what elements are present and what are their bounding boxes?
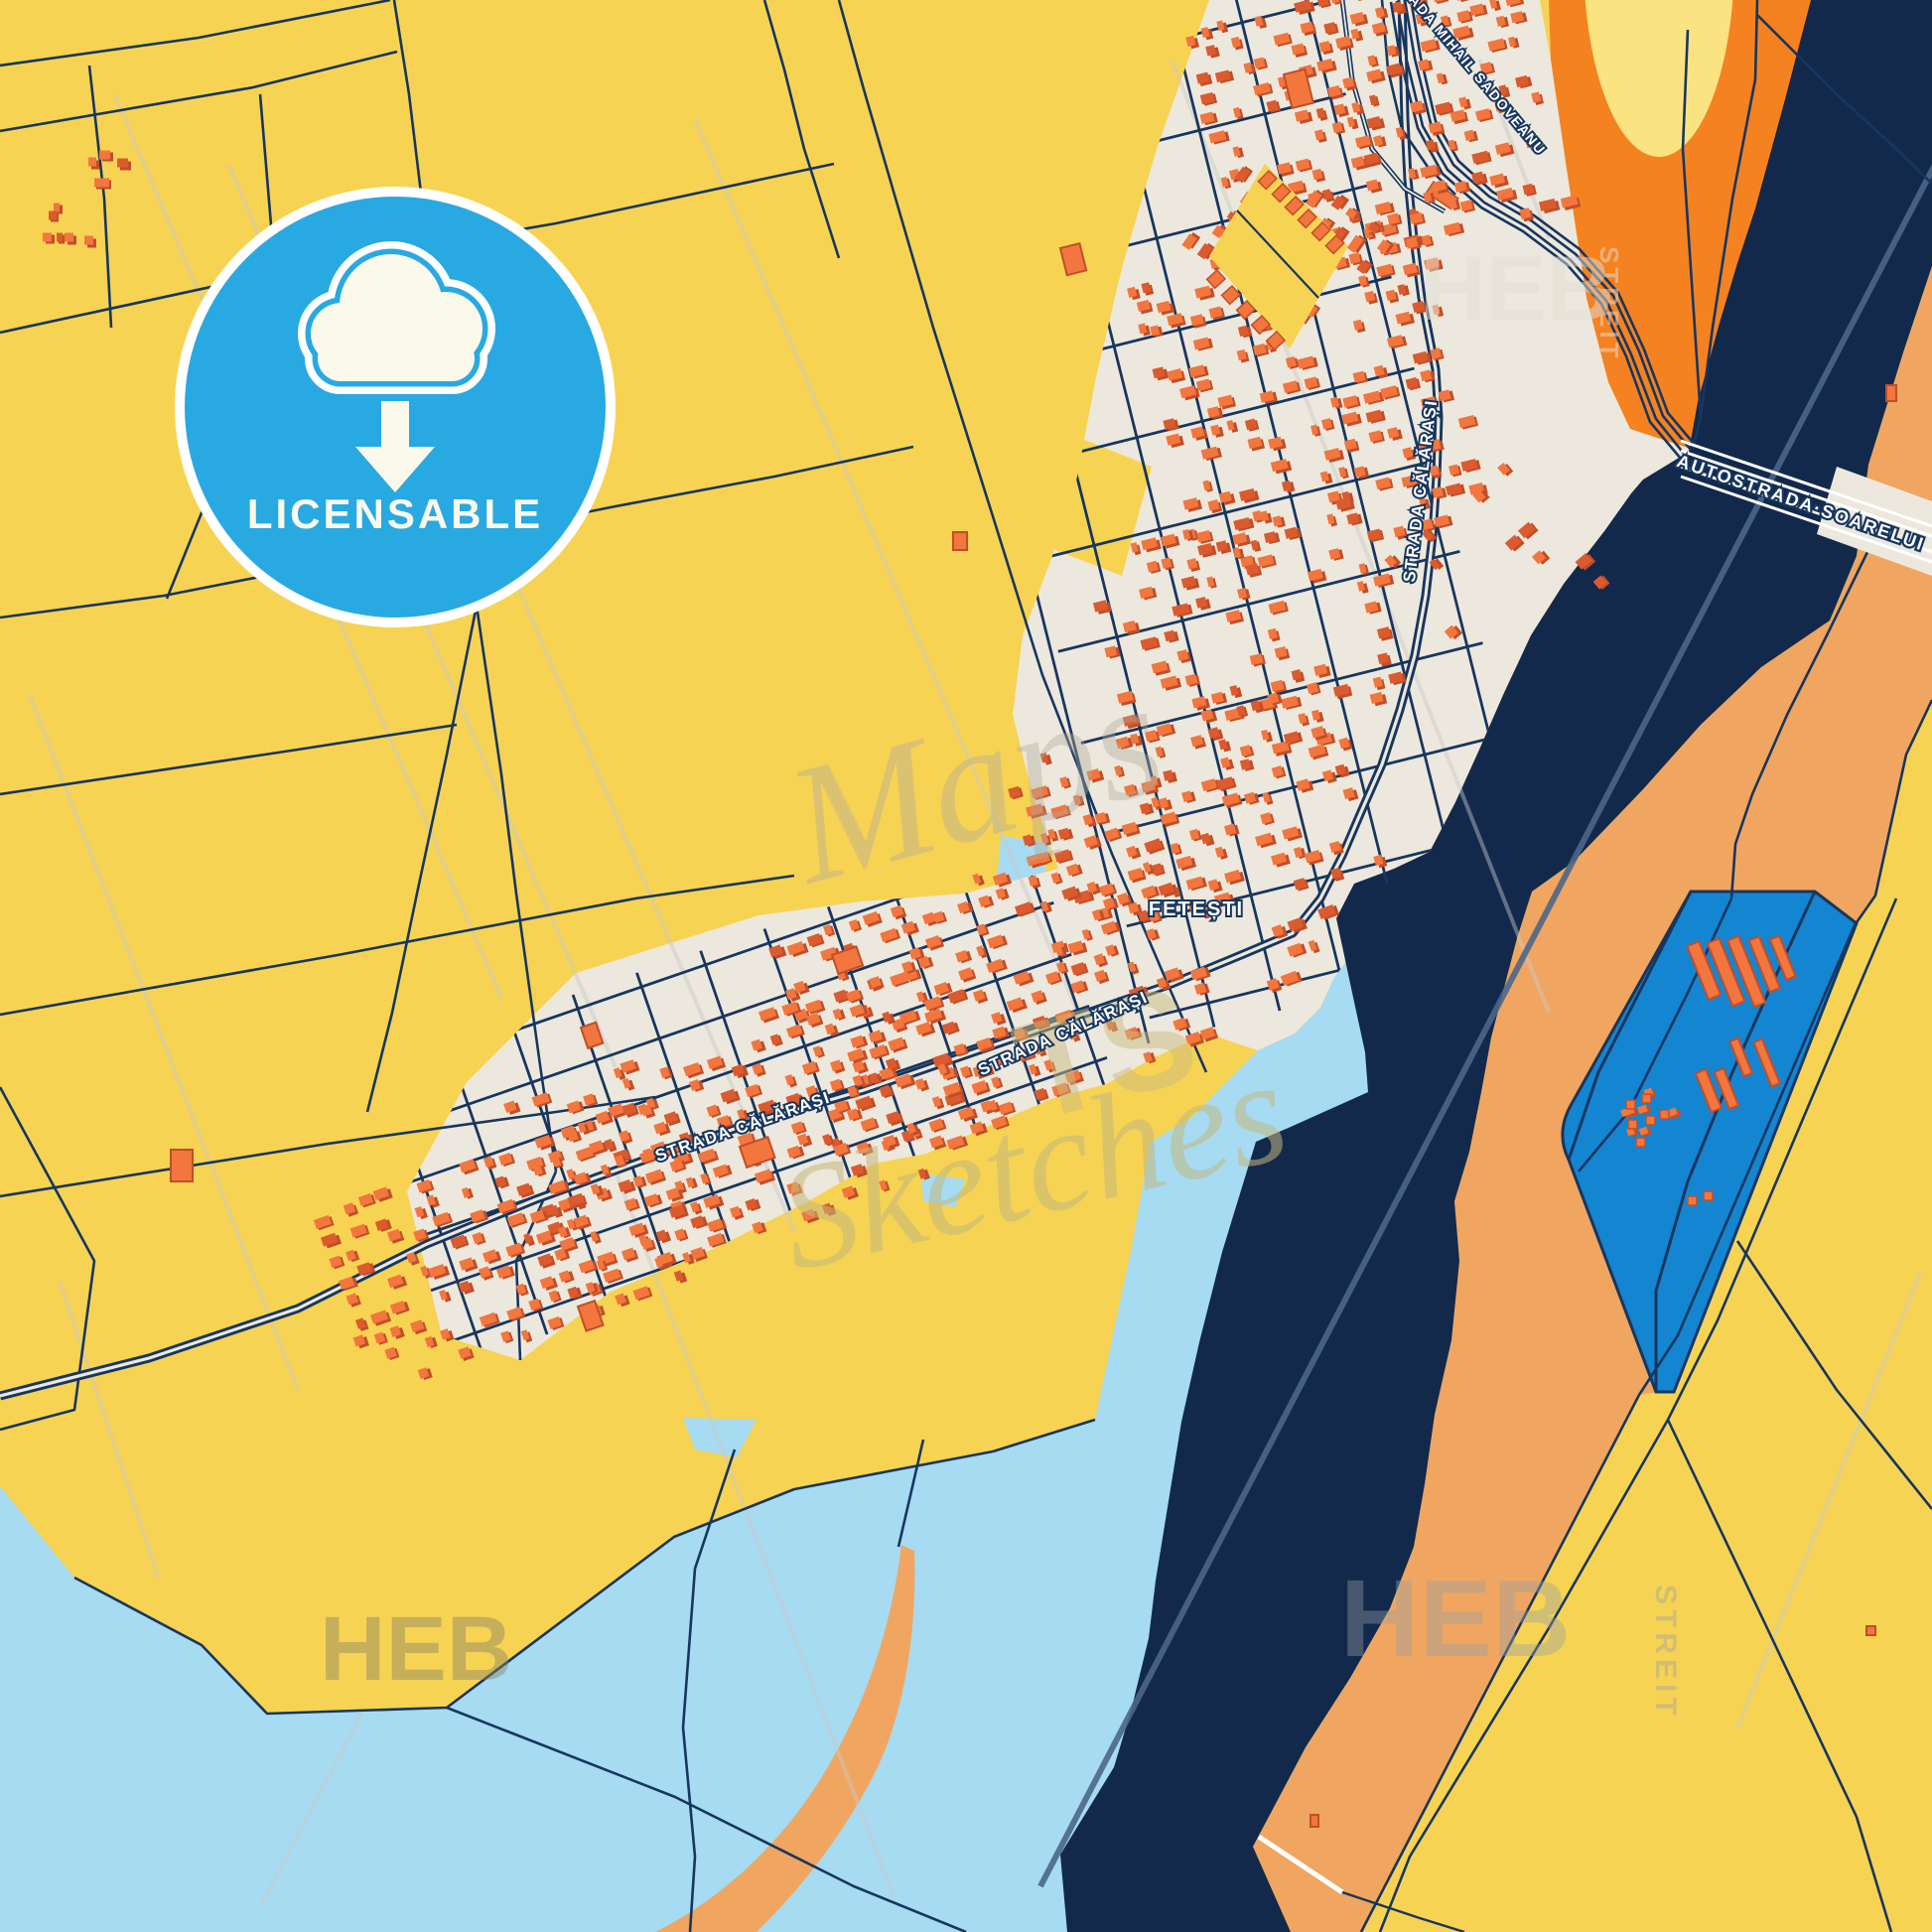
svg-text:STREIT: STREIT	[1649, 1585, 1682, 1721]
svg-text:LICENSABLE: LICENSABLE	[247, 490, 543, 537]
svg-text:STREIT: STREIT	[1594, 246, 1624, 361]
svg-text:HEB: HEB	[320, 1598, 512, 1700]
svg-text:HEB: HEB	[1340, 1558, 1571, 1680]
svg-text:HEB: HEB	[1420, 238, 1612, 340]
svg-text:FETEȘTI: FETEȘTI	[1149, 898, 1244, 920]
